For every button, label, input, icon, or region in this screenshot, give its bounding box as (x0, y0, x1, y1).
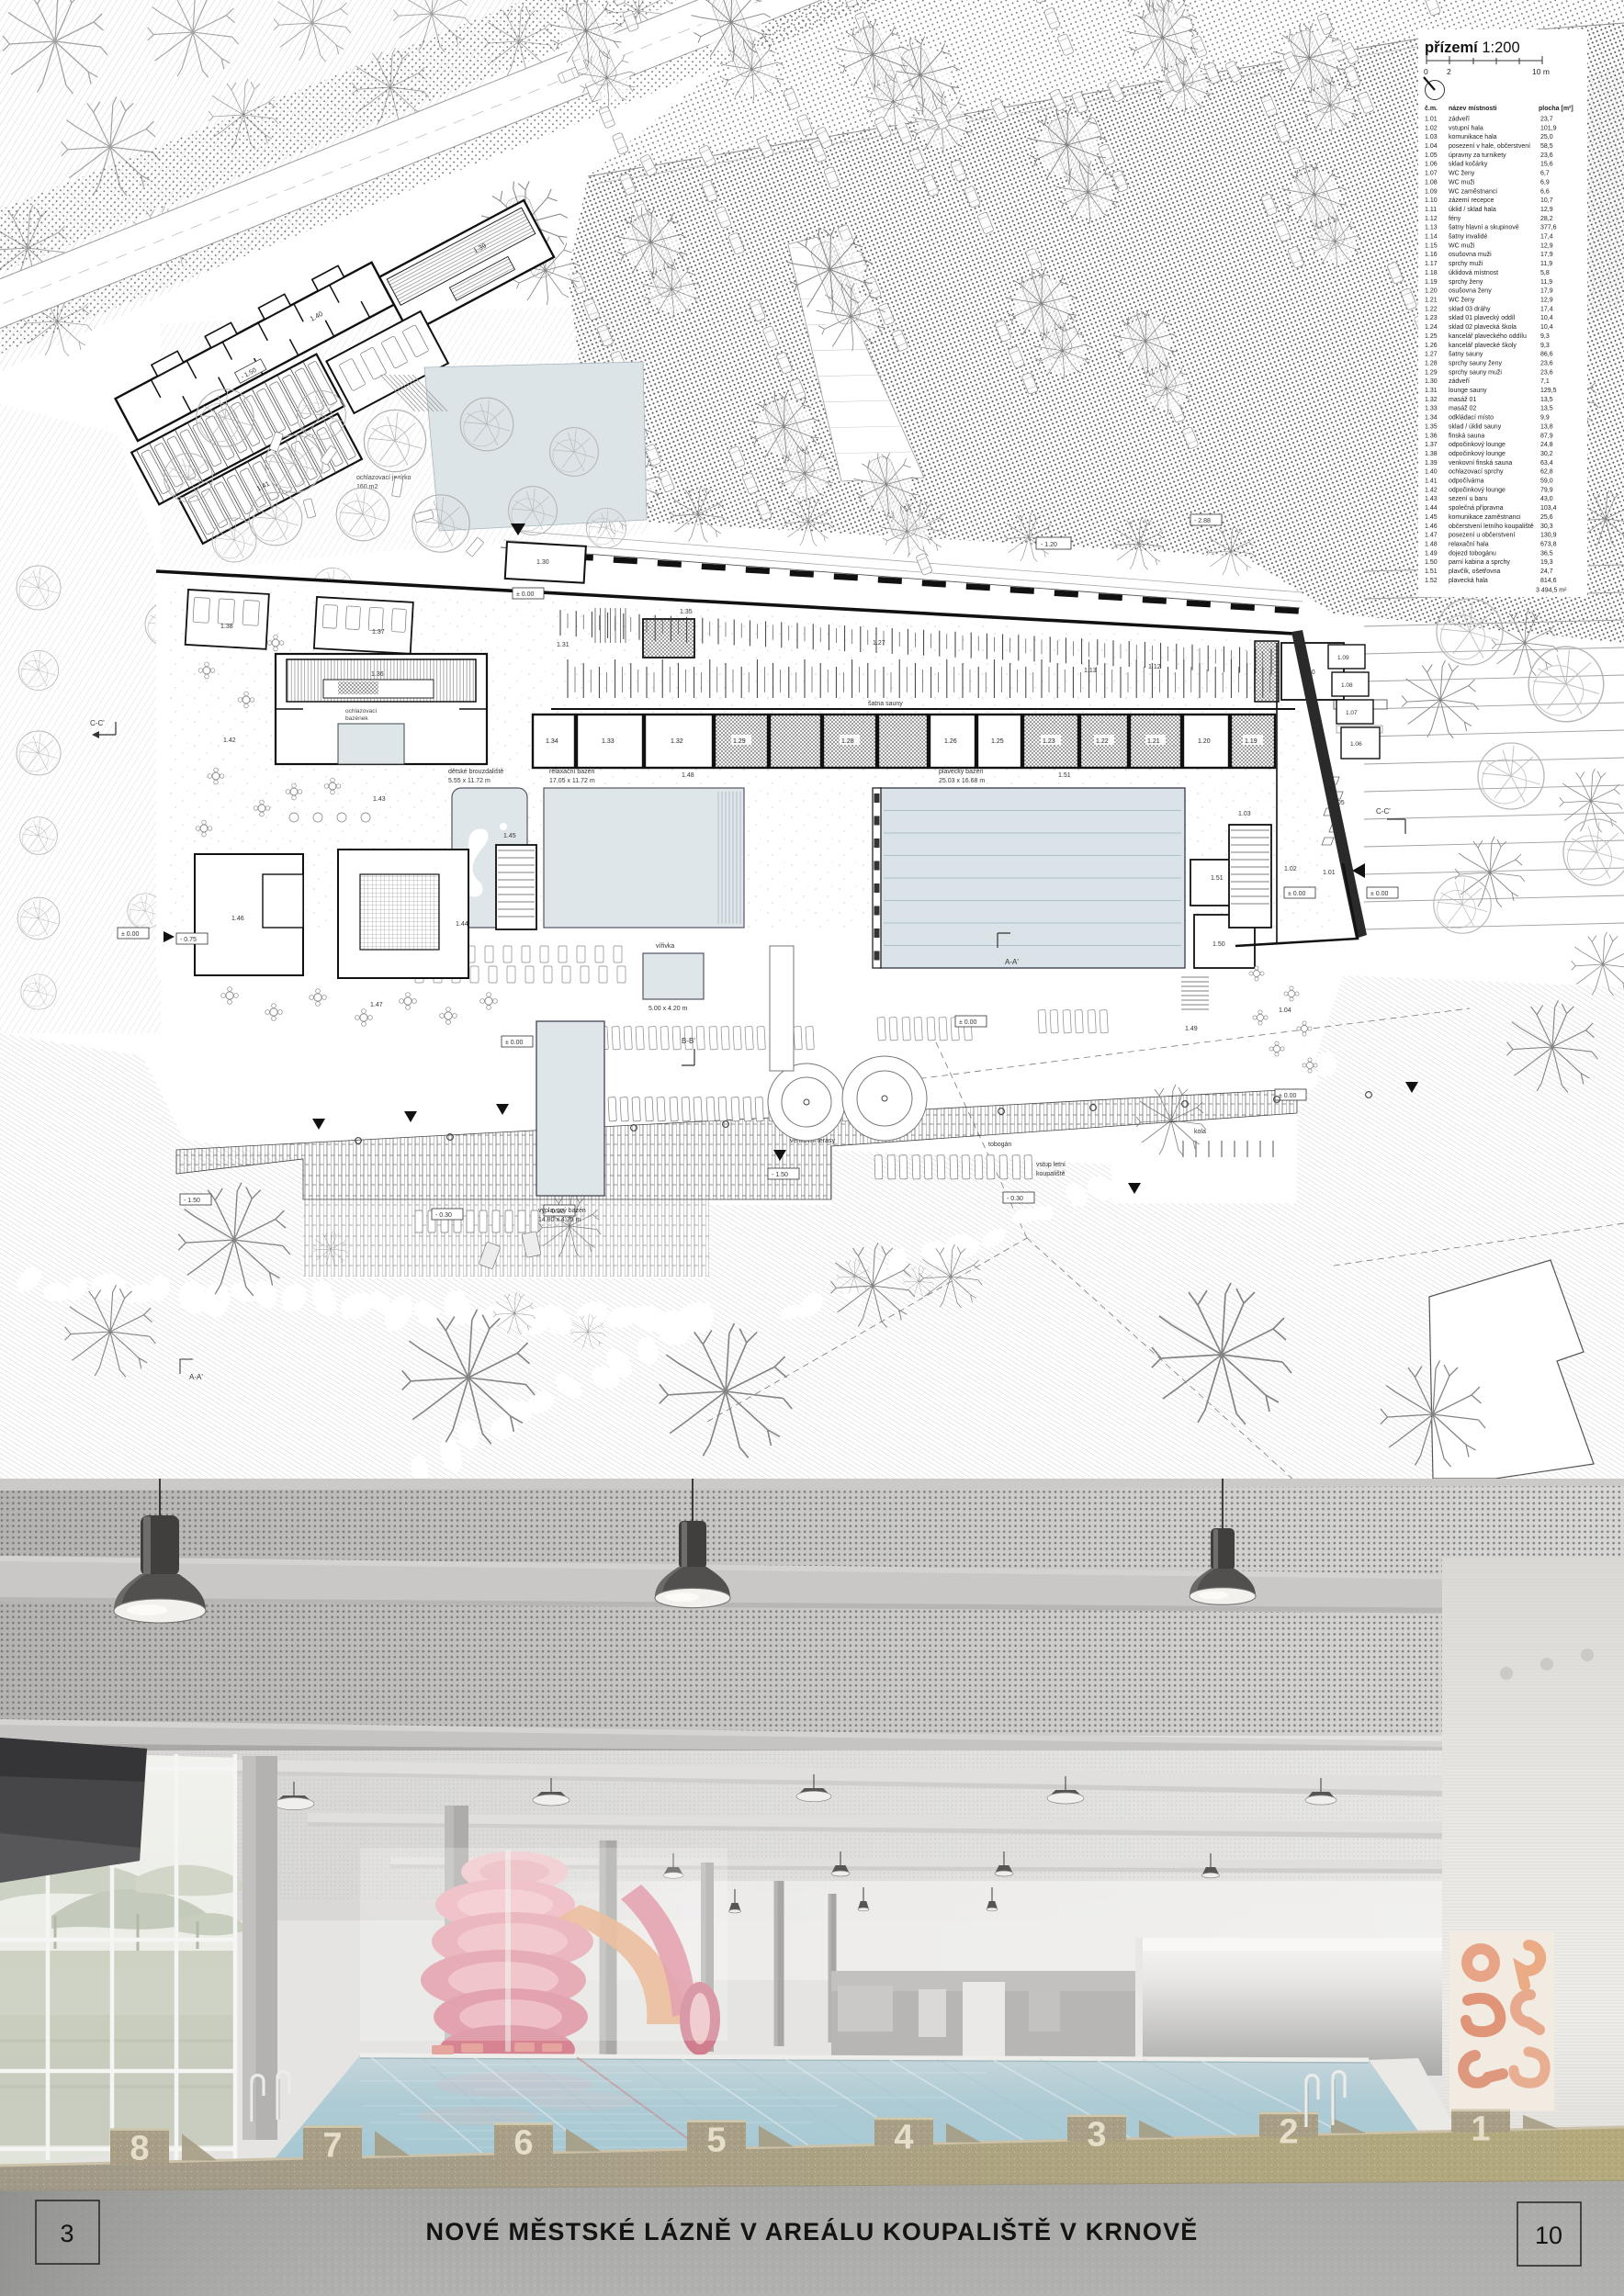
svg-text:komunikace zaměstnanci: komunikace zaměstnanci (1449, 514, 1521, 521)
svg-text:A-A': A-A' (1005, 958, 1019, 966)
svg-text:8: 8 (130, 2129, 149, 2167)
svg-text:1.25: 1.25 (1425, 333, 1438, 340)
svg-text:1.31: 1.31 (1425, 388, 1438, 394)
svg-text:± 0.00: ± 0.00 (505, 1040, 524, 1046)
svg-text:30,2: 30,2 (1540, 451, 1553, 457)
svg-text:1.03: 1.03 (1238, 811, 1251, 817)
svg-text:10 m: 10 m (1532, 67, 1550, 76)
svg-text:3: 3 (1087, 2116, 1106, 2155)
svg-text:10,7: 10,7 (1540, 197, 1553, 204)
svg-text:1.06: 1.06 (1425, 162, 1438, 168)
svg-text:28,2: 28,2 (1540, 216, 1553, 222)
svg-text:1.37: 1.37 (1425, 442, 1438, 448)
svg-text:23,6: 23,6 (1540, 152, 1553, 159)
svg-text:43,0: 43,0 (1540, 496, 1553, 502)
svg-text:377,6: 377,6 (1540, 225, 1557, 231)
svg-text:1.18: 1.18 (1425, 270, 1438, 276)
svg-text:osušovna muži: osušovna muži (1449, 252, 1492, 258)
svg-text:plavecká hala: plavecká hala (1449, 578, 1488, 584)
svg-text:- 0.30: - 0.30 (1007, 1196, 1023, 1202)
svg-text:odpočívárna: odpočívárna (1449, 478, 1484, 485)
svg-text:1.13: 1.13 (1084, 668, 1097, 674)
svg-text:WC ženy: WC ženy (1449, 171, 1475, 177)
svg-text:1.45: 1.45 (1425, 514, 1438, 521)
svg-text:NOVÉ MĚSTSKÉ LÁZNĚ V AREÁLU KO: NOVÉ MĚSTSKÉ LÁZNĚ V AREÁLU KOUPALIŠTĚ V… (426, 2217, 1199, 2245)
svg-text:673,8: 673,8 (1540, 542, 1557, 548)
svg-text:79,9: 79,9 (1540, 487, 1553, 493)
svg-text:úpravny za turnikety: úpravny za turnikety (1449, 152, 1506, 159)
svg-text:vstup letní: vstup letní (1036, 1162, 1066, 1168)
svg-text:1.05: 1.05 (1425, 152, 1438, 159)
svg-text:1.48: 1.48 (1425, 542, 1438, 548)
svg-text:17,9: 17,9 (1540, 252, 1553, 258)
svg-text:1.30: 1.30 (536, 559, 549, 566)
svg-text:výplavový bazén: výplavový bazén (538, 1208, 586, 1214)
svg-text:1.26: 1.26 (1425, 343, 1438, 349)
svg-text:1.50: 1.50 (1212, 941, 1225, 948)
svg-text:1.29: 1.29 (1425, 369, 1438, 376)
svg-text:občerstvení letního koupaliště: občerstvení letního koupaliště (1449, 523, 1534, 530)
svg-text:13,8: 13,8 (1540, 423, 1553, 430)
svg-text:2: 2 (1279, 2113, 1298, 2152)
svg-text:1.44: 1.44 (1425, 505, 1438, 512)
svg-text:plavecký bazén: plavecký bazén (939, 769, 983, 775)
svg-text:1.14: 1.14 (1425, 234, 1438, 241)
svg-text:23,6: 23,6 (1540, 361, 1553, 367)
svg-text:lounge sauny: lounge sauny (1449, 388, 1487, 394)
svg-text:osušovna ženy: osušovna ženy (1449, 288, 1492, 295)
svg-text:šatny sauny: šatny sauny (1449, 352, 1483, 358)
svg-text:25.03 x 16.68 m: 25.03 x 16.68 m (939, 778, 985, 784)
svg-text:1.07: 1.07 (1425, 171, 1438, 177)
svg-text:14.80 x 4.75 m: 14.80 x 4.75 m (538, 1217, 581, 1223)
svg-text:17,9: 17,9 (1540, 288, 1553, 295)
svg-text:sklad / úklid sauny: sklad / úklid sauny (1449, 423, 1502, 430)
svg-text:č.m.: č.m. (1425, 106, 1438, 112)
svg-text:62,8: 62,8 (1540, 469, 1553, 476)
svg-text:3 494,5 m²: 3 494,5 m² (1536, 588, 1567, 594)
svg-text:1.31: 1.31 (557, 642, 570, 648)
svg-text:87,9: 87,9 (1540, 433, 1553, 439)
svg-text:masáž 01: masáž 01 (1449, 397, 1476, 403)
svg-text:24,7: 24,7 (1540, 568, 1553, 575)
svg-text:zádveří: zádveří (1449, 117, 1470, 123)
svg-text:9,9: 9,9 (1540, 415, 1550, 422)
svg-text:WC ženy: WC ženy (1449, 298, 1475, 304)
svg-text:1.47: 1.47 (1425, 533, 1438, 539)
svg-text:12,9: 12,9 (1540, 298, 1553, 304)
svg-text:86,6: 86,6 (1540, 352, 1553, 358)
svg-text:23,6: 23,6 (1540, 369, 1553, 376)
svg-text:sezení u baru: sezení u baru (1449, 496, 1488, 502)
svg-text:C-C': C-C' (1376, 807, 1391, 816)
svg-text:25,0: 25,0 (1540, 134, 1553, 141)
svg-text:společná přípravna: společná přípravna (1449, 505, 1504, 512)
svg-text:17,4: 17,4 (1540, 306, 1553, 312)
svg-text:A-A': A-A' (189, 1373, 203, 1381)
svg-text:1.12: 1.12 (1148, 664, 1161, 670)
svg-text:1.01: 1.01 (1323, 870, 1336, 876)
svg-text:plavčík, ošetřovna: plavčík, ošetřovna (1449, 568, 1501, 575)
svg-text:1.49: 1.49 (1185, 1026, 1198, 1032)
svg-text:3: 3 (60, 2220, 73, 2247)
svg-text:1.51: 1.51 (1058, 772, 1071, 779)
svg-text:9,3: 9,3 (1540, 343, 1550, 349)
svg-text:5: 5 (706, 2121, 726, 2159)
svg-text:- 1.50: - 1.50 (772, 1172, 788, 1178)
svg-text:parní kabina a sprchy: parní kabina a sprchy (1449, 559, 1510, 566)
svg-text:1.13: 1.13 (1425, 225, 1438, 231)
svg-text:finská sauna: finská sauna (1449, 433, 1484, 439)
svg-text:1.23: 1.23 (1043, 738, 1055, 745)
svg-text:bazének: bazének (345, 715, 368, 722)
svg-text:1.21: 1.21 (1425, 298, 1438, 304)
svg-text:1.33: 1.33 (1425, 406, 1438, 412)
svg-text:1.19: 1.19 (1245, 738, 1257, 745)
svg-text:59,0: 59,0 (1540, 478, 1553, 485)
svg-text:5.55 x 11.72 m: 5.55 x 11.72 m (448, 778, 491, 784)
svg-text:sprchy sauny ženy: sprchy sauny ženy (1449, 361, 1502, 367)
svg-text:1.17: 1.17 (1425, 261, 1438, 267)
svg-text:1.45: 1.45 (503, 833, 516, 839)
svg-text:relaxační hala: relaxační hala (1449, 542, 1489, 548)
svg-text:12,9: 12,9 (1540, 242, 1553, 249)
svg-text:1.48: 1.48 (682, 772, 694, 779)
svg-text:B-B': B-B' (682, 1037, 695, 1045)
svg-text:1.22: 1.22 (1425, 306, 1438, 312)
svg-text:1.32: 1.32 (671, 738, 683, 745)
svg-text:šatny hlavní a skupinové: šatny hlavní a skupinové (1449, 225, 1519, 231)
svg-text:6,9: 6,9 (1540, 179, 1550, 186)
svg-text:13,5: 13,5 (1540, 406, 1553, 412)
svg-text:1.08: 1.08 (1341, 682, 1353, 689)
svg-text:1.06: 1.06 (1350, 741, 1362, 748)
svg-text:1.32: 1.32 (1425, 397, 1438, 403)
svg-text:4: 4 (894, 2119, 913, 2157)
svg-text:posezení u občerstvení: posezení u občerstvení (1449, 533, 1515, 539)
svg-text:WC zaměstnanci: WC zaměstnanci (1449, 188, 1497, 195)
svg-text:1.38: 1.38 (1425, 451, 1438, 457)
svg-text:7,1: 7,1 (1540, 378, 1550, 385)
svg-text:WC muži: WC muži (1449, 179, 1475, 186)
svg-text:- 0.30: - 0.30 (435, 1212, 452, 1219)
svg-text:vířivka: vířivka (656, 943, 674, 950)
svg-text:vstupní hala: vstupní hala (1449, 125, 1483, 131)
svg-text:šatny invalidé: šatny invalidé (1449, 234, 1488, 241)
svg-text:1.22: 1.22 (1096, 738, 1109, 745)
svg-text:1.51: 1.51 (1425, 568, 1438, 575)
svg-text:1.42: 1.42 (223, 737, 236, 744)
svg-text:23,7: 23,7 (1540, 117, 1553, 123)
svg-text:103,4: 103,4 (1540, 505, 1557, 512)
svg-text:- 1.20: - 1.20 (1041, 542, 1057, 548)
svg-text:sklad 03 dráhy: sklad 03 dráhy (1449, 306, 1491, 312)
svg-text:1.10: 1.10 (1425, 197, 1438, 204)
svg-text:1.19: 1.19 (1425, 279, 1438, 286)
svg-text:1.21: 1.21 (1147, 738, 1160, 745)
svg-text:129,5: 129,5 (1540, 388, 1557, 394)
svg-text:1.25: 1.25 (991, 738, 1004, 745)
svg-text:30,3: 30,3 (1540, 523, 1553, 530)
svg-text:1.52: 1.52 (1425, 578, 1438, 584)
svg-text:17.05 x 11.72 m: 17.05 x 11.72 m (549, 778, 595, 784)
svg-text:sprchy muži: sprchy muži (1449, 261, 1483, 267)
svg-text:10,4: 10,4 (1540, 324, 1553, 331)
svg-text:kancelář plavecké školy: kancelář plavecké školy (1449, 343, 1517, 349)
svg-text:1.24: 1.24 (1425, 324, 1438, 331)
svg-text:6,6: 6,6 (1540, 188, 1550, 195)
svg-text:± 0.00: ± 0.00 (959, 1019, 977, 1026)
svg-text:1.20: 1.20 (1425, 288, 1438, 295)
svg-text:19,3: 19,3 (1540, 559, 1553, 566)
svg-text:odpočinkový lounge: odpočinkový lounge (1449, 451, 1506, 457)
svg-text:1.40: 1.40 (1425, 469, 1438, 476)
svg-text:relaxační bazén: relaxační bazén (549, 769, 595, 775)
svg-text:komunikace hala: komunikace hala (1449, 134, 1497, 141)
svg-text:36,5: 36,5 (1540, 550, 1553, 557)
svg-text:1.50: 1.50 (1425, 559, 1438, 566)
svg-text:± 0.00: ± 0.00 (516, 591, 535, 598)
svg-text:1.26: 1.26 (944, 738, 957, 745)
svg-text:venkovní finská sauna: venkovní finská sauna (1449, 460, 1512, 467)
svg-text:- 0.75: - 0.75 (180, 937, 197, 943)
svg-text:10: 10 (1535, 2222, 1562, 2249)
svg-text:ochlazovací sprchy: ochlazovací sprchy (1449, 469, 1504, 476)
svg-text:9,3: 9,3 (1540, 333, 1550, 340)
svg-text:11,9: 11,9 (1540, 261, 1552, 267)
svg-text:sklad 02 plavecká škola: sklad 02 plavecká škola (1449, 324, 1517, 331)
svg-text:- 2.88: - 2.88 (1194, 518, 1211, 524)
svg-text:1: 1 (1471, 2110, 1490, 2149)
svg-text:1.41: 1.41 (1425, 478, 1438, 485)
svg-text:58,5: 58,5 (1540, 143, 1553, 150)
svg-text:plocha [m²]: plocha [m²] (1539, 106, 1573, 112)
svg-text:1.35: 1.35 (680, 609, 693, 615)
svg-text:zázemí recepce: zázemí recepce (1449, 197, 1494, 204)
svg-text:13,5: 13,5 (1540, 397, 1553, 403)
svg-text:posezení v hale, občerstvení: posezení v hale, občerstvení (1449, 143, 1530, 150)
svg-text:1.30: 1.30 (1425, 378, 1438, 385)
svg-text:ochlazovací: ochlazovací (345, 708, 378, 715)
svg-text:1.49: 1.49 (1425, 550, 1438, 557)
svg-text:sklad kočárky: sklad kočárky (1449, 162, 1488, 168)
svg-text:koupaliště: koupaliště (1036, 1171, 1066, 1177)
svg-text:1.02: 1.02 (1284, 866, 1297, 872)
svg-text:C-C': C-C' (90, 719, 105, 727)
svg-text:1.47: 1.47 (370, 1002, 383, 1008)
svg-text:1.44: 1.44 (456, 921, 468, 928)
svg-text:1.36: 1.36 (1425, 433, 1438, 439)
svg-text:± 0.00: ± 0.00 (1279, 1093, 1297, 1099)
svg-text:5,8: 5,8 (1540, 270, 1550, 276)
svg-text:1.09: 1.09 (1425, 188, 1438, 195)
svg-text:1.46: 1.46 (1425, 523, 1438, 530)
svg-text:1.46: 1.46 (231, 916, 244, 922)
svg-text:sprchy sauny muži: sprchy sauny muži (1449, 369, 1502, 376)
svg-text:odpočinkový lounge: odpočinkový lounge (1449, 442, 1506, 448)
svg-text:úklidová místnost: úklidová místnost (1449, 270, 1498, 276)
svg-text:1.11: 1.11 (1425, 207, 1437, 213)
svg-text:sprchy ženy: sprchy ženy (1449, 279, 1483, 286)
svg-text:25,6: 25,6 (1540, 514, 1553, 521)
svg-text:odkládací místo: odkládací místo (1449, 415, 1494, 422)
svg-text:1.39: 1.39 (1425, 460, 1438, 467)
svg-text:1.37: 1.37 (372, 629, 385, 636)
svg-text:15,6: 15,6 (1540, 162, 1553, 168)
svg-text:1.27: 1.27 (873, 640, 885, 647)
svg-text:11,9: 11,9 (1540, 279, 1552, 286)
svg-text:fény: fény (1449, 216, 1461, 222)
svg-text:1.04: 1.04 (1425, 143, 1438, 150)
svg-text:1.43: 1.43 (1425, 496, 1438, 502)
svg-text:šatna sauny: šatna sauny (868, 701, 903, 707)
svg-text:název místnosti: název místnosti (1449, 106, 1497, 112)
svg-text:101,9: 101,9 (1540, 125, 1557, 131)
svg-text:úklid / sklad hala: úklid / sklad hala (1449, 207, 1496, 213)
svg-text:tobogán: tobogán (988, 1142, 1011, 1148)
svg-text:1.03: 1.03 (1425, 134, 1438, 141)
svg-text:odpočinkový lounge: odpočinkový lounge (1449, 487, 1506, 493)
svg-text:1.04: 1.04 (1279, 1007, 1291, 1014)
svg-text:zádveří: zádveří (1449, 378, 1470, 385)
svg-text:1.20: 1.20 (1198, 738, 1211, 745)
svg-text:2: 2 (1447, 67, 1451, 76)
svg-text:masáž 02: masáž 02 (1449, 406, 1476, 412)
svg-text:sklad 01 plavecký oddíl: sklad 01 plavecký oddíl (1449, 315, 1516, 321)
svg-text:1.33: 1.33 (602, 738, 615, 745)
svg-text:7: 7 (322, 2126, 342, 2165)
svg-text:kola: kola (1194, 1129, 1206, 1135)
svg-text:WC muži: WC muži (1449, 242, 1475, 249)
svg-text:± 0.00: ± 0.00 (1288, 891, 1306, 897)
svg-text:10,4: 10,4 (1540, 315, 1553, 321)
svg-text:1.15: 1.15 (1425, 242, 1438, 249)
svg-text:1.36: 1.36 (371, 671, 384, 678)
svg-text:přízemí 1:200: přízemí 1:200 (1425, 39, 1520, 56)
svg-text:130,9: 130,9 (1540, 533, 1557, 539)
svg-text:1.43: 1.43 (373, 796, 386, 803)
svg-text:1.38: 1.38 (220, 624, 233, 630)
svg-text:1.28: 1.28 (1425, 361, 1438, 367)
svg-text:6,7: 6,7 (1540, 171, 1550, 177)
svg-text:1.01: 1.01 (1425, 117, 1438, 123)
svg-text:17,4: 17,4 (1540, 234, 1553, 241)
svg-text:1.34: 1.34 (1425, 415, 1438, 422)
svg-text:1.28: 1.28 (841, 738, 854, 745)
svg-text:0: 0 (1424, 67, 1428, 76)
svg-text:160 m2: 160 m2 (356, 484, 378, 490)
svg-text:24,8: 24,8 (1540, 442, 1553, 448)
svg-text:63,4: 63,4 (1540, 460, 1553, 467)
svg-text:dojezd tobogánu: dojezd tobogánu (1449, 550, 1496, 557)
svg-text:1.07: 1.07 (1346, 710, 1358, 716)
svg-text:1.51: 1.51 (1211, 875, 1224, 882)
svg-text:6: 6 (513, 2123, 533, 2162)
svg-text:± 0.00: ± 0.00 (121, 931, 140, 938)
svg-text:± 0.00: ± 0.00 (1370, 891, 1389, 897)
svg-text:1.27: 1.27 (1425, 352, 1438, 358)
svg-text:1.35: 1.35 (1425, 423, 1438, 430)
svg-text:1.02: 1.02 (1425, 125, 1438, 131)
svg-text:1.09: 1.09 (1337, 655, 1349, 661)
svg-text:kancelář plaveckého oddílu: kancelář plaveckého oddílu (1449, 333, 1527, 340)
svg-text:1.08: 1.08 (1425, 179, 1438, 186)
svg-text:1.23: 1.23 (1425, 315, 1438, 321)
svg-text:12,9: 12,9 (1540, 207, 1553, 213)
svg-text:dětské brouzdaliště: dětské brouzdaliště (448, 769, 503, 775)
svg-text:1.16: 1.16 (1425, 252, 1438, 258)
svg-text:1.29: 1.29 (733, 738, 746, 745)
svg-text:1.34: 1.34 (546, 738, 558, 745)
svg-text:- 1.50: - 1.50 (184, 1198, 200, 1204)
svg-text:1.12: 1.12 (1425, 216, 1438, 222)
svg-text:5.00 x 4.20 m: 5.00 x 4.20 m (648, 1006, 688, 1012)
svg-text:1.42: 1.42 (1425, 487, 1438, 493)
svg-text:814,6: 814,6 (1540, 578, 1557, 584)
